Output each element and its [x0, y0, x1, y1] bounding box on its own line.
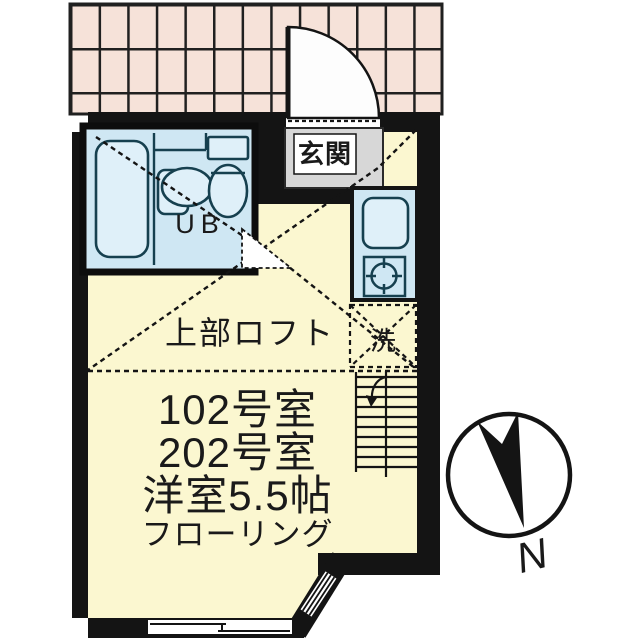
- toilet-tank-icon: [208, 137, 248, 159]
- compass-icon: [448, 412, 570, 536]
- kitchen-area: [352, 188, 417, 300]
- washbasin-icon: [162, 168, 212, 206]
- laundry-label: 洗: [350, 321, 416, 358]
- room-number-202: 202号室: [105, 431, 370, 474]
- entrance-label: 玄関: [294, 134, 356, 174]
- room-info: 102号室 202号室 洋室5.5帖 フローリング: [105, 388, 370, 553]
- flooring-label: フローリング: [105, 517, 370, 553]
- window-icon: [148, 620, 292, 634]
- room-number-102: 102号室: [105, 388, 370, 431]
- floor-plan: 玄関 UB 上部ロフト 洗 102号室 202号室 洋室5.5帖 フローリング …: [0, 0, 640, 640]
- loft-label: 上部ロフト: [145, 308, 355, 354]
- unit-bath-area: [83, 126, 255, 272]
- room-size: 洋室5.5帖: [105, 474, 370, 517]
- bathtub-icon: [96, 141, 148, 257]
- kitchen-sink-icon: [363, 198, 408, 248]
- unit-bath-label: UB: [160, 209, 240, 240]
- tile-area: [70, 4, 442, 114]
